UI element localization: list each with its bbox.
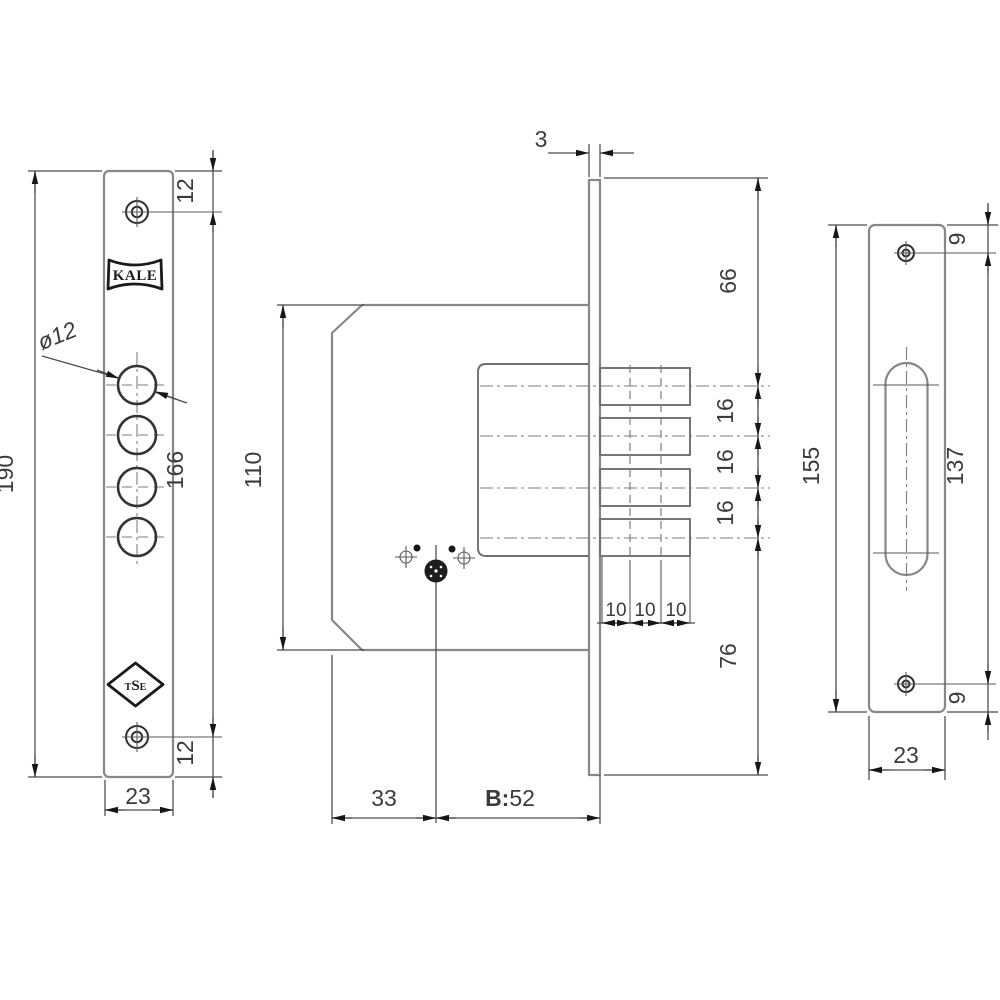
cylinder-hole	[425, 560, 448, 583]
dim-label-16a: 16	[712, 398, 738, 424]
dim-label-10a: 10	[605, 600, 626, 621]
kale-logo-text: KALE	[113, 268, 158, 284]
strike-view: 155 9 137 9 23	[798, 203, 998, 780]
dim-throw-steps: 10 10 10	[597, 557, 695, 623]
tse-logo-text: TSE	[125, 678, 147, 694]
dim-label-166: 166	[162, 451, 188, 489]
dim-label-23-front: 23	[125, 783, 151, 809]
dim-bolt-position-chain: 66 16 16 16 76	[604, 178, 768, 775]
front-view: KALE TSE	[0, 150, 222, 816]
dim-label-110: 110	[240, 452, 266, 489]
mechanism-box-outline	[478, 364, 589, 556]
dim-front-overall-length: 190	[0, 171, 102, 777]
dim-label-10c: 10	[665, 600, 686, 621]
dim-label-190: 190	[0, 455, 18, 493]
technical-drawing-canvas: KALE TSE	[0, 0, 1000, 1000]
fixing-hole-right	[449, 546, 476, 570]
dim-strike-width: 23	[869, 716, 945, 780]
dim-label-155: 155	[798, 447, 824, 485]
dim-strike-screw-chain: 9 137 9	[942, 203, 998, 740]
dim-bolt-diameter: ø12	[34, 316, 187, 403]
dim-label-3: 3	[535, 126, 548, 152]
dim-label-dia12: ø12	[34, 316, 81, 355]
faceplate-edge-outline	[589, 180, 600, 775]
dim-label-137: 137	[942, 447, 968, 485]
dim-label-66: 66	[715, 268, 741, 294]
dim-case-depth: 110	[240, 305, 364, 650]
side-view: 10 10 10	[240, 126, 770, 824]
strike-bolt-slot	[873, 347, 939, 591]
dim-label-16c: 16	[712, 500, 738, 526]
kale-logo: KALE	[108, 260, 162, 289]
dim-label-backset: B:52	[485, 785, 535, 811]
dim-front-width: 23	[105, 780, 173, 816]
dim-label-16b: 16	[712, 449, 738, 475]
dim-faceplate-thickness: 3	[535, 126, 634, 177]
dim-label-10b: 10	[634, 600, 655, 621]
dim-label-12-bottom: 12	[172, 740, 198, 766]
dim-backset-chain: 33 B:52	[332, 655, 600, 824]
cylinder-axis-group	[395, 545, 475, 824]
dim-label-33: 33	[371, 785, 397, 811]
fixing-hole-left	[395, 545, 421, 569]
dim-label-12-top: 12	[172, 178, 198, 204]
dim-label-9-top: 9	[944, 233, 970, 246]
dim-strike-length: 155	[798, 225, 867, 712]
dim-front-screw-chain: 12 166 12	[162, 150, 222, 798]
lock-dimension-drawing: KALE TSE	[0, 0, 1000, 1000]
dim-label-76: 76	[715, 643, 741, 669]
lock-case-outline	[332, 305, 589, 650]
tse-logo: TSE	[108, 663, 163, 706]
dim-label-9-bottom: 9	[944, 692, 970, 705]
dim-label-23-strike: 23	[893, 742, 919, 768]
